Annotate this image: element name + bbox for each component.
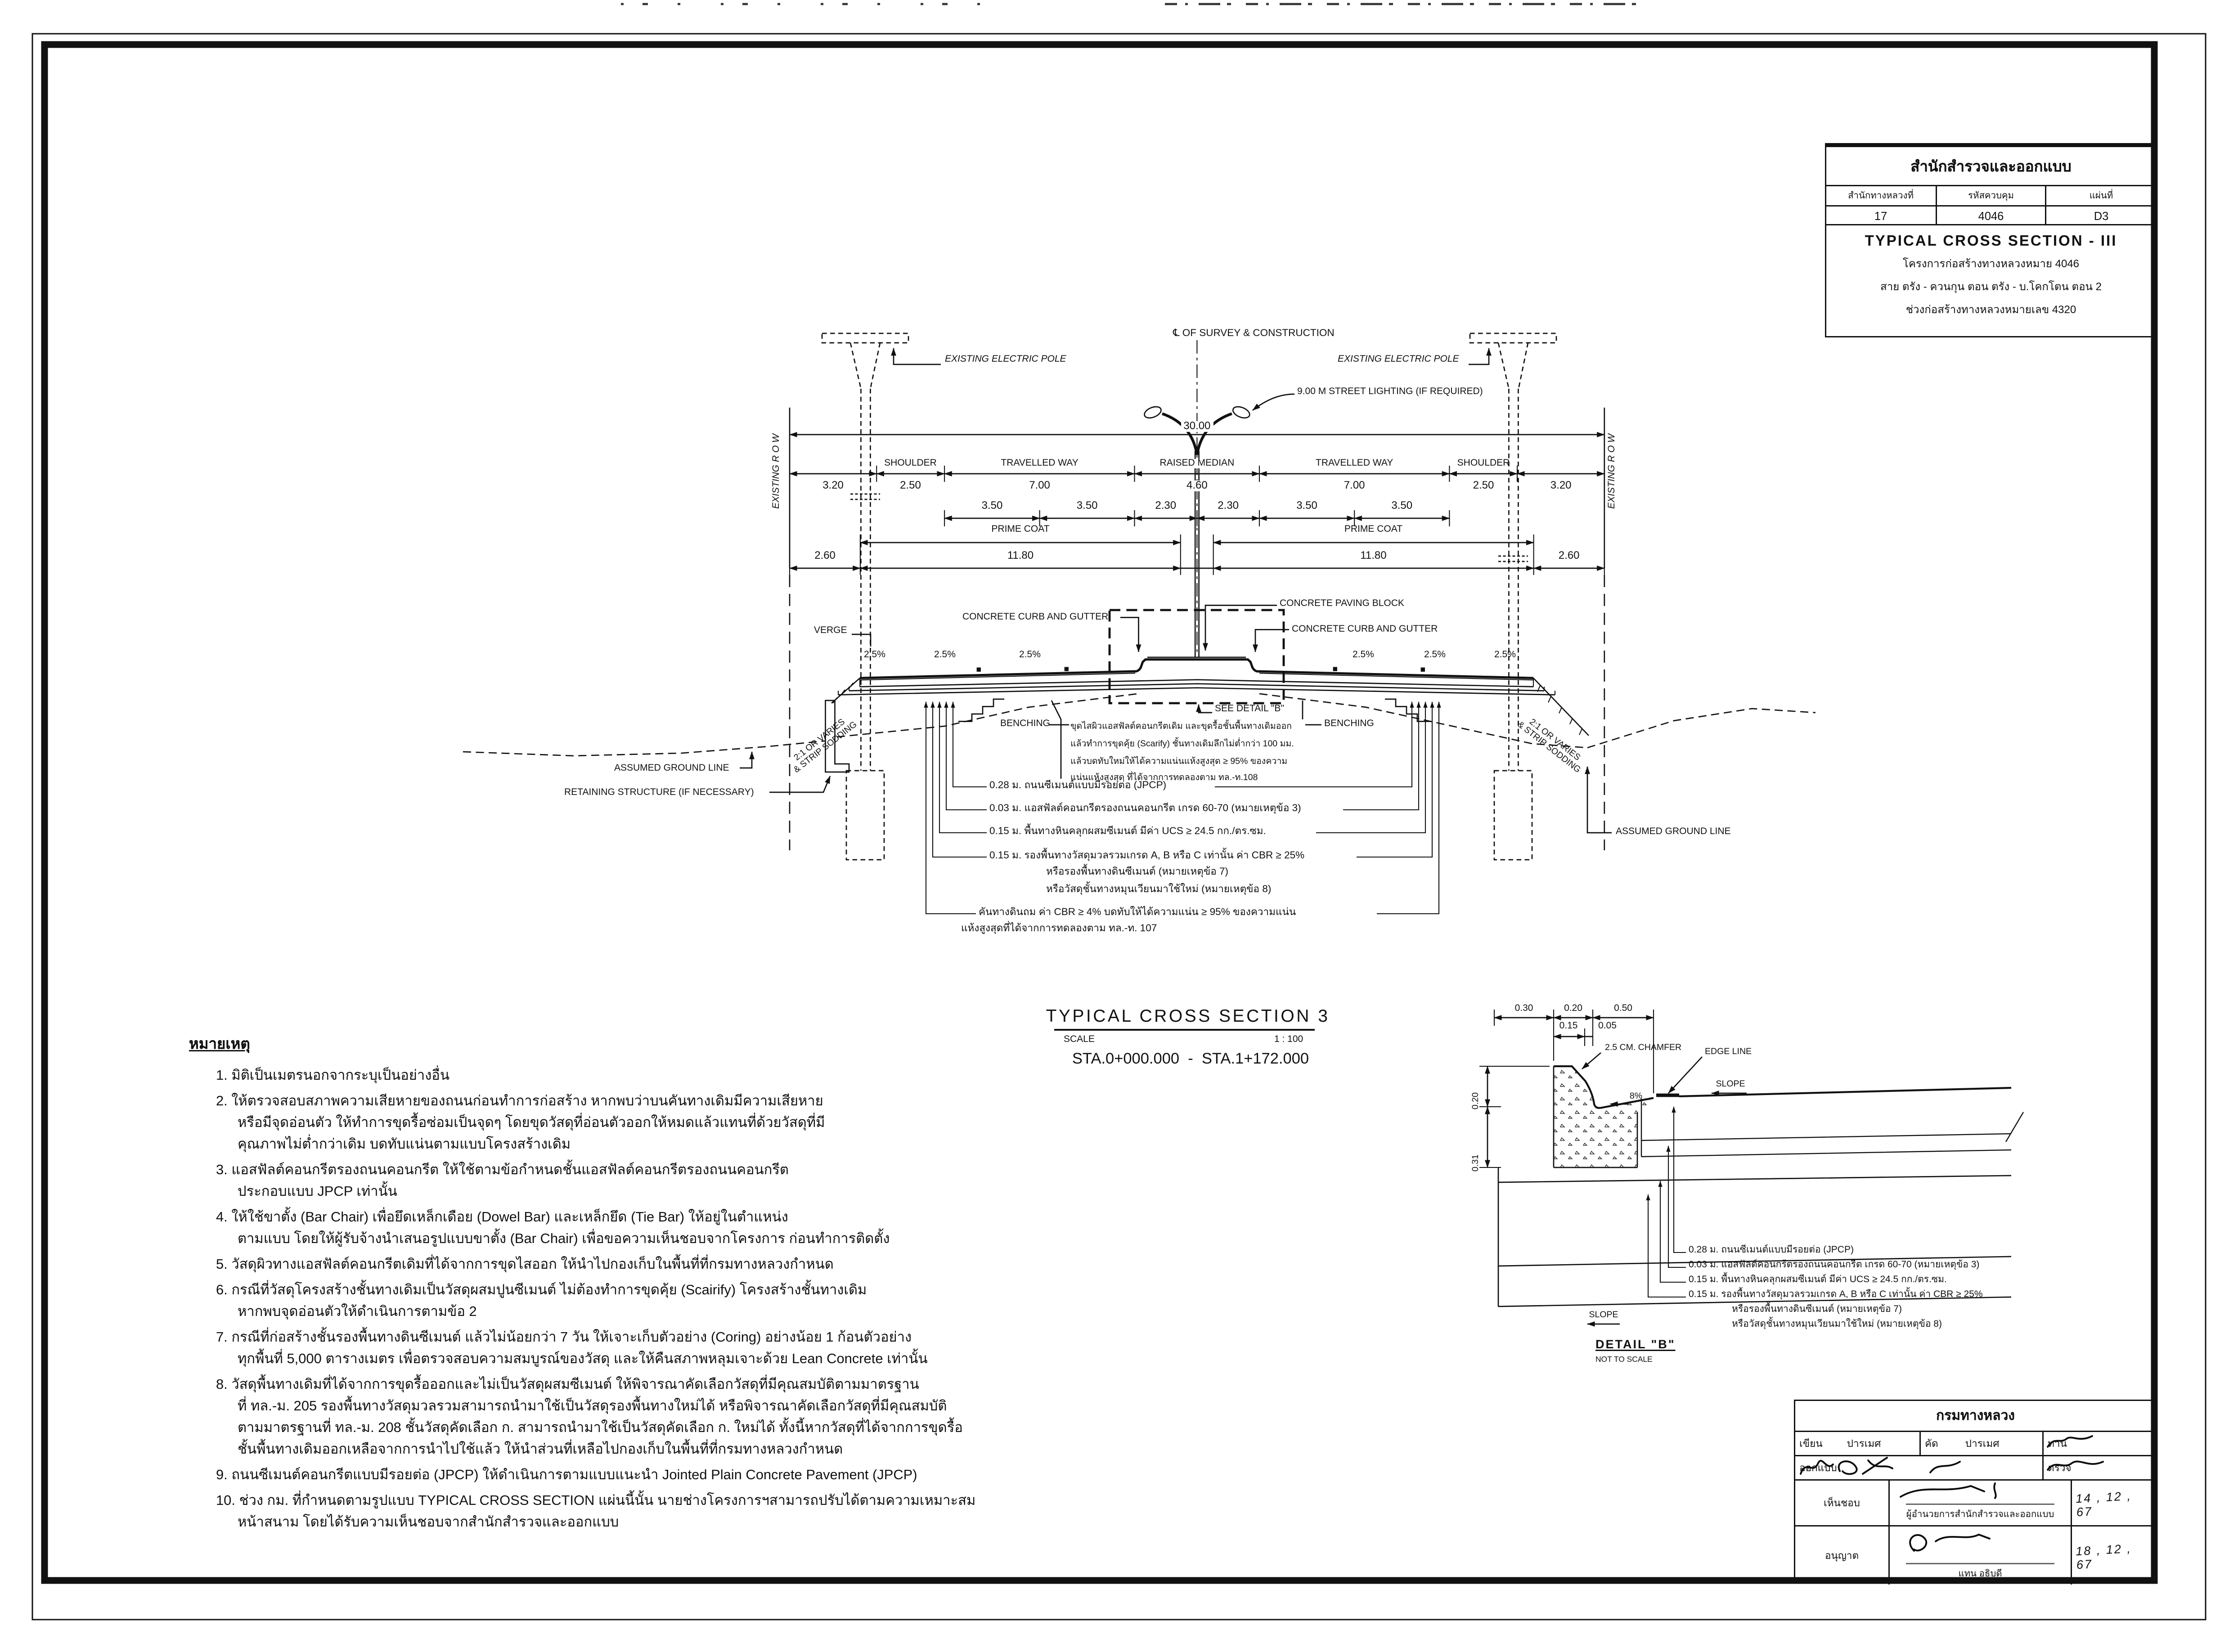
db-dim-030: 0.30: [1515, 1004, 1533, 1014]
label-assumed-ground-left: ASSUMED GROUND LINE: [614, 764, 729, 774]
dim-250-left: 2.50: [900, 480, 921, 492]
db-label-grade: 8%: [1630, 1093, 1642, 1102]
label-see-detail-b: SEE DETAIL "B": [1215, 705, 1284, 714]
db-layer-4-desc: รองพื้นทางวัสดุมวลรวมเกรด A, B หรือ C เท…: [1721, 1290, 1982, 1300]
layer-1-depth: 0.28 ม.: [989, 779, 1021, 791]
label-prime-coat-left: PRIME COAT: [991, 525, 1049, 535]
dim-460: 4.60: [1186, 480, 1208, 492]
project-line3: ช่วงก่อสร้างทางหลวงหมายเลข 4320: [1826, 296, 2156, 319]
label-curb-gutter-right: CONCRETE CURB AND GUTTER: [1292, 625, 1438, 635]
notes-heading: หมายเหตุ: [189, 1031, 1471, 1055]
sig-verified-cell: ตรวจ: [2042, 1456, 2156, 1479]
db-dim-v020: 0.20: [1473, 1072, 1482, 1109]
dim-320-right: 3.20: [1550, 480, 1572, 492]
centerline-label: ℄ OF SURVEY & CONSTRUCTION: [1173, 328, 1335, 339]
db-dim-v031: 0.31: [1473, 1123, 1482, 1172]
sig-approved-date-cell: 14 , 12 , 67: [2071, 1481, 2156, 1525]
sig-drawn-cell: เขียน ปารเมศ: [1795, 1432, 1919, 1455]
db-label-slope-right: SLOPE: [1716, 1081, 1745, 1090]
label-verge: VERGE: [814, 626, 847, 636]
label-travelled-way-left: TRAVELLED WAY: [1001, 459, 1078, 469]
col3-value: D3: [2047, 206, 2156, 224]
db-layer-2: 0.03 ม. แอสฟัลต์คอนกรีตรองถนนคอนกรีต เกร…: [1689, 1261, 1979, 1270]
note-item-7: 7. กรณีที่ก่อสร้างชั้นรองพื้นทางดินซีเมน…: [216, 1328, 1471, 1371]
section-title: TYPICAL CROSS SECTION 3: [1046, 1007, 1330, 1025]
sig-traced-label: คัด: [1925, 1436, 1938, 1452]
sig-approved-title: ผู้อำนวยการสำนักสำรวจและออกแบบ: [1894, 1505, 2067, 1524]
title-block-col3: แผ่นที่ D3: [2045, 186, 2156, 224]
dim-350-1: 3.50: [982, 501, 1003, 512]
label-retaining-structure: RETAINING STRUCTURE (IF NECESSARY): [564, 788, 754, 798]
db-layer-4c: หรือวัสดุชั้นทางหมุนเวียนมาใช้ใหม่ (หมาย…: [1732, 1320, 1942, 1330]
sig-authorized-date: 18 , 12 , 67: [2076, 1540, 2153, 1571]
dim-320-left: 3.20: [822, 480, 844, 492]
layer-row-4b: หรือรองพื้นทางดินซีเมนต์ (หมายเหตุข้อ 7): [1046, 866, 1228, 877]
sig-approved-date: 14 , 12 , 67: [2076, 1487, 2153, 1518]
db-layer-4-depth: 0.15 ม.: [1689, 1290, 1718, 1300]
slope-2-5-5: 2.5%: [1424, 651, 1446, 660]
dim-700-left: 7.00: [1029, 480, 1050, 492]
db-dim-005: 0.05: [1598, 1022, 1617, 1032]
label-travelled-way-right: TRAVELLED WAY: [1316, 459, 1393, 469]
sig-designed-cell: ออกแบบ: [1795, 1456, 2042, 1479]
sig-traced-cell: คัด ปารเมศ: [1919, 1432, 2042, 1455]
slope-2-5-4: 2.5%: [1353, 651, 1374, 660]
sig-checked-cell: ทาน: [2042, 1432, 2156, 1455]
title-block-col2: รหัสควบคุม 4046: [1935, 186, 2045, 224]
label-prime-coat-right: PRIME COAT: [1344, 525, 1402, 535]
project-line1: โครงการก่อสร้างทางหลวงหมาย 4046: [1826, 250, 2156, 273]
notes-section: หมายเหตุ 1. มิติเป็นเมตรนอกจากระบุเป็นอย…: [189, 1031, 1471, 1539]
layer-row-3: 0.15 ม. พื้นทางหินคลุกผสมซีเมนต์ มีค่า U…: [989, 826, 1266, 837]
db-label-slope-lower: SLOPE: [1589, 1312, 1618, 1321]
detail-b-title: DETAIL "B": [1595, 1339, 1676, 1351]
dim-230-2: 2.30: [1218, 501, 1239, 512]
sig-authorized-date-cell: 18 , 12 , 67: [2071, 1526, 2156, 1585]
layer-2-depth: 0.03 ม.: [989, 802, 1021, 814]
signature-authorized: [1890, 1526, 2025, 1553]
dim-total: 30.00: [1181, 421, 1213, 432]
slope-2-5-6: 2.5%: [1494, 651, 1516, 660]
db-layer-1: 0.28 ม. ถนนซีเมนต์แบบมีรอยต่อ (JPCP): [1689, 1246, 1854, 1256]
slope-2-5-1: 2.5%: [864, 651, 885, 660]
sig-authorized-cell: แทน อธิบดี: [1888, 1526, 2071, 1585]
db-layer-3-desc: พื้นทางหินคลุกผสมซีเมนต์ มีค่า UCS ≥ 24.…: [1721, 1275, 1947, 1285]
slope-2-5-3: 2.5%: [1019, 651, 1041, 660]
layer-row-4: 0.15 ม. รองพื้นทางวัสดุมวลรวมเกรด A, B ห…: [989, 850, 1304, 861]
note-item-9: 9. ถนนซีเมนต์คอนกรีตแบบมีรอยต่อ (JPCP) ใ…: [216, 1466, 1471, 1487]
row-label-left: EXISTING R O W: [772, 381, 782, 509]
col1-label: สำนักทางหลวงที่: [1826, 186, 1935, 206]
note-item-1: 1. มิติเป็นเมตรนอกจากระบุเป็นอย่างอื่น: [216, 1066, 1471, 1088]
note-item-2: 2. ให้ตรวจสอบสภาพความเสียหายของถนนก่อนทำ…: [216, 1092, 1471, 1157]
note-item-8: 8. วัสดุพื้นทางเดิมที่ได้จากการขุดรื้อออ…: [216, 1375, 1471, 1462]
db-layer-2-depth: 0.03 ม.: [1689, 1261, 1718, 1270]
signature-verified: [2044, 1456, 2108, 1477]
label-benching-left: BENCHING: [1000, 719, 1050, 729]
dim-350-4: 3.50: [1391, 501, 1412, 512]
sig-drawn-label: เขียน: [1799, 1436, 1823, 1452]
electric-pole-label-left: EXISTING ELECTRIC POLE: [945, 355, 1066, 365]
row-label-right: EXISTING R O W: [1608, 381, 1618, 509]
layer-2-desc: แอสฟัลต์คอนกรีตรองถนนคอนกรีต เกรด 60-70 …: [1024, 802, 1301, 814]
db-dim-050: 0.50: [1614, 1004, 1632, 1014]
layer-1-desc: ถนนซีเมนต์แบบมีรอยต่อ (JPCP): [1024, 779, 1166, 791]
db-dim-020: 0.20: [1564, 1004, 1582, 1014]
sig-authorized-label-cell: อนุญาต: [1795, 1526, 1888, 1585]
title-block-agency: สำนักสำรวจและออกแบบ: [1826, 147, 2156, 186]
layer-row-4c: หรือวัสดุชั้นทางหมุนเวียนมาใช้ใหม่ (หมาย…: [1046, 884, 1271, 895]
label-shoulder-left: SHOULDER: [884, 459, 937, 469]
sig-traced-value: ปารเมศ: [1965, 1436, 2000, 1452]
layer-row-1: 0.28 ม. ถนนซีเมนต์แบบมีรอยต่อ (JPCP): [989, 780, 1166, 791]
project-line2: สาย ตรัง - ควนกุน ตอน ตรัง - บ.โคกโตน ตอ…: [1826, 273, 2156, 296]
db-label-chamfer: 2.5 CM. CHAMFER: [1605, 1045, 1681, 1054]
col2-label: รหัสควบคุม: [1937, 186, 2045, 206]
dim-250-right: 2.50: [1473, 480, 1494, 492]
drawing-title: TYPICAL CROSS SECTION - III: [1826, 225, 2156, 250]
sig-authorized-label: อนุญาต: [1825, 1548, 1859, 1564]
col1-value: 17: [1826, 206, 1935, 224]
slope-2-5-2: 2.5%: [934, 651, 956, 660]
layer-row-5: คันทางดินถม ค่า CBR ≥ 4% บดทับให้ได้ความ…: [979, 907, 1296, 918]
note-item-10: 10. ช่วง กม. ที่กำหนดตามรูปแบบ TYPICAL C…: [216, 1491, 1471, 1535]
label-curb-gutter-left: CONCRETE CURB AND GUTTER: [962, 613, 1108, 623]
scarify-note: ขุดไสผิวแอสฟัลต์คอนกรีตเดิม และขุดรื้อชั…: [1070, 719, 1313, 789]
sig-approved-cell: ผู้อำนวยการสำนักสำรวจและออกแบบ: [1888, 1481, 2071, 1525]
dim-260-right: 2.60: [1559, 551, 1580, 562]
db-label-edge-line: EDGE LINE: [1705, 1049, 1752, 1058]
db-layer-3-depth: 0.15 ม.: [1689, 1275, 1718, 1285]
signature-block: กรมทางหลวง เขียน ปารเมศ คัด ปารเมศ ทาน อ…: [1794, 1400, 2157, 1583]
dim-700-right: 7.00: [1344, 480, 1365, 492]
db-dim-015: 0.15: [1559, 1022, 1578, 1032]
dim-260-left: 2.60: [814, 551, 836, 562]
dim-350-2: 3.50: [1077, 501, 1098, 512]
detail-b-scale-note: NOT TO SCALE: [1595, 1356, 1653, 1365]
db-layer-1-depth: 0.28 ม.: [1689, 1246, 1718, 1255]
db-layer-4: 0.15 ม. รองพื้นทางวัสดุมวลรวมเกรด A, B ห…: [1689, 1290, 1983, 1300]
db-layer-4b: หรือรองพื้นทางดินซีเมนต์ (หมายเหตุข้อ 7): [1732, 1305, 1902, 1315]
label-benching-right: BENCHING: [1324, 719, 1374, 729]
col3-label: แผ่นที่: [2047, 186, 2156, 206]
note-item-4: 4. ให้ใช้ขาตั้ง (Bar Chair) เพื่อยึดเหล็…: [216, 1208, 1471, 1251]
sig-drawn-value: ปารเมศ: [1847, 1436, 1881, 1452]
sig-agency: กรมทางหลวง: [1795, 1401, 2156, 1432]
street-lighting-label: 9.00 M STREET LIGHTING (IF REQUIRED): [1297, 387, 1483, 397]
db-layer-1-desc: ถนนซีเมนต์แบบมีรอยต่อ (JPCP): [1721, 1246, 1854, 1255]
dim-350-3: 3.50: [1296, 501, 1317, 512]
signature-designed: [1795, 1456, 1971, 1478]
sig-authorized-title: แทน อธิบดี: [1894, 1564, 2067, 1583]
electric-pole-label-right: EXISTING ELECTRIC POLE: [1338, 355, 1459, 365]
layer-4-desc: รองพื้นทางวัสดุมวลรวมเกรด A, B หรือ C เท…: [1024, 849, 1304, 861]
db-layer-3: 0.15 ม. พื้นทางหินคลุกผสมซีเมนต์ มีค่า U…: [1689, 1275, 1947, 1285]
signature-approved: [1890, 1481, 2025, 1499]
dim-1180-right: 11.80: [1360, 551, 1386, 562]
dim-1180-left: 11.80: [1007, 551, 1034, 562]
note-item-5: 5. วัสดุผิวทางแอสฟัลต์คอนกรีตเดิมที่ได้จ…: [216, 1255, 1471, 1277]
label-raised-median: RAISED MEDIAN: [1160, 459, 1235, 469]
col2-value: 4046: [1937, 206, 2045, 224]
title-block-col1: สำนักทางหลวงที่ 17: [1826, 186, 1935, 224]
label-shoulder-right: SHOULDER: [1457, 459, 1510, 469]
layer-3-desc: พื้นทางหินคลุกผสมซีเมนต์ มีค่า UCS ≥ 24.…: [1024, 825, 1266, 837]
sig-approved-label: เห็นชอบ: [1824, 1495, 1860, 1511]
title-block: สำนักสำรวจและออกแบบ สำนักทางหลวงที่ 17 ร…: [1825, 143, 2157, 337]
note-item-3: 3. แอสฟัลต์คอนกรีตรองถนนคอนกรีต ให้ใช้ตา…: [216, 1161, 1471, 1204]
label-paving-block: CONCRETE PAVING BLOCK: [1280, 599, 1404, 609]
label-assumed-ground-right: ASSUMED GROUND LINE: [1616, 827, 1731, 837]
signature-checked: [2044, 1432, 2098, 1452]
sig-approved-label-cell: เห็นชอบ: [1795, 1481, 1888, 1525]
dim-230-1: 2.30: [1155, 501, 1176, 512]
note-item-6: 6. กรณีที่วัสดุโครงสร้างชั้นทางเดิมเป็นว…: [216, 1281, 1471, 1324]
layer-row-5b: แห้งสูงสุดที่ได้จากการทดลองตาม ทล.-ท. 10…: [961, 923, 1157, 934]
drawing-sheet: ℄ OF SURVEY & CONSTRUCTION 9.00 M STREET…: [0, 0, 2238, 1652]
layer-4-depth: 0.15 ม.: [989, 849, 1021, 861]
layer-3-depth: 0.15 ม.: [989, 825, 1021, 837]
layer-row-2: 0.03 ม. แอสฟัลต์คอนกรีตรองถนนคอนกรีต เกร…: [989, 803, 1301, 814]
db-layer-2-desc: แอสฟัลต์คอนกรีตรองถนนคอนกรีต เกรด 60-70 …: [1721, 1261, 1979, 1270]
